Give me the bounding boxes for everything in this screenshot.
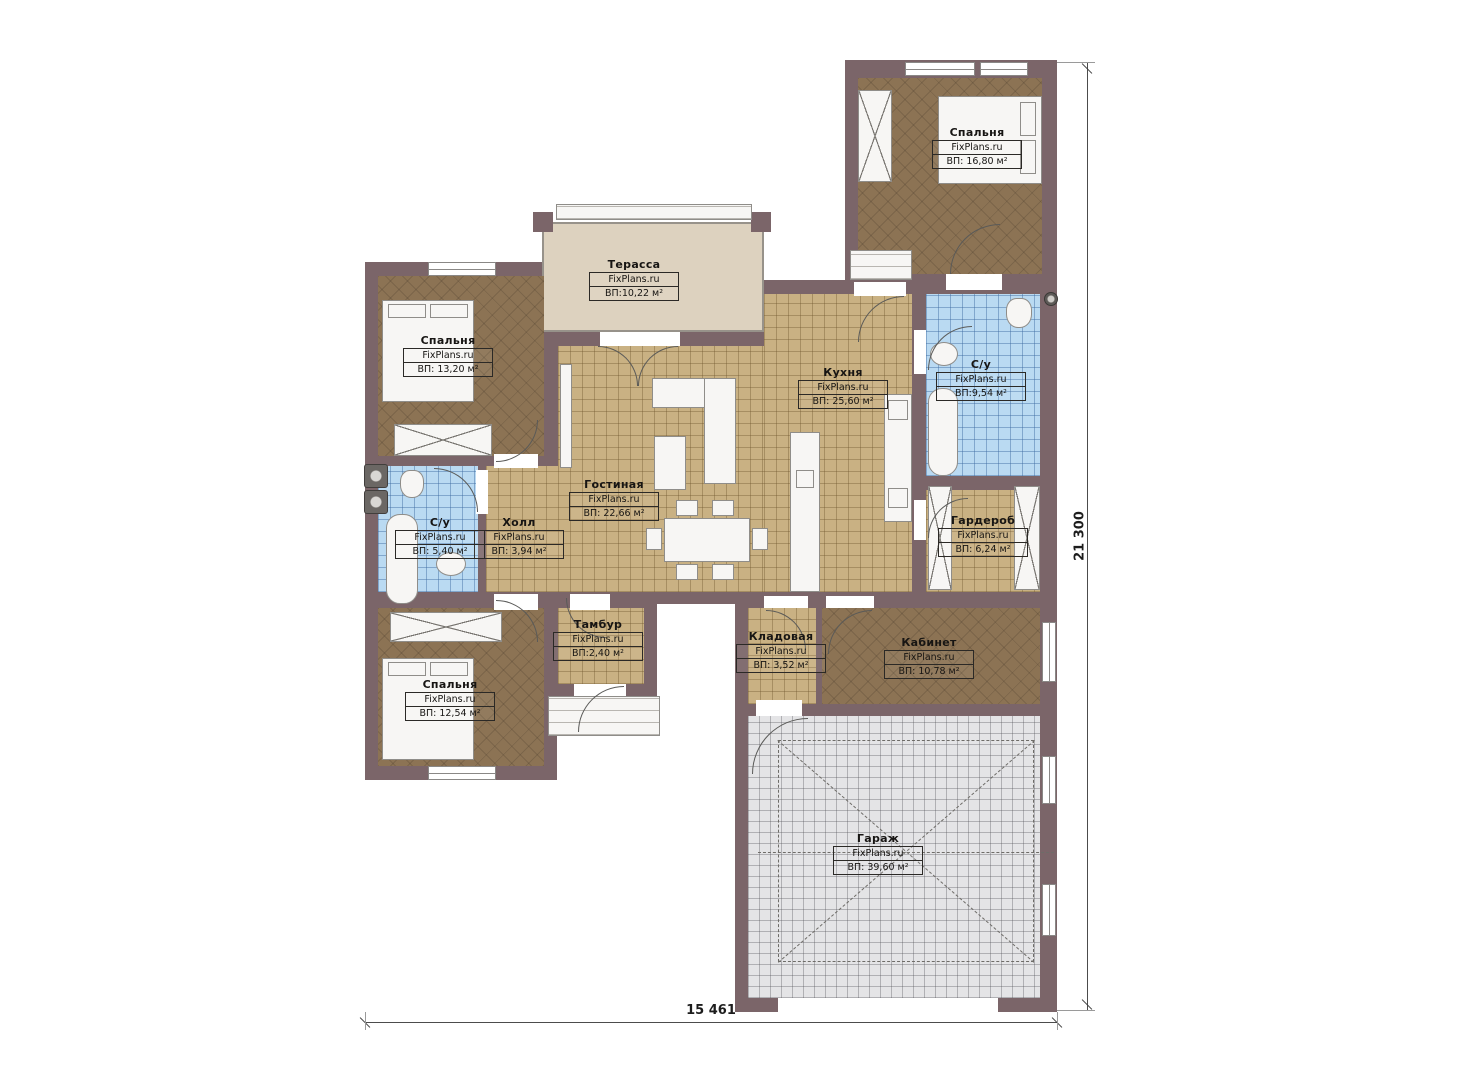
brand-watermark: FixPlans.ru bbox=[395, 530, 485, 545]
brand-watermark: FixPlans.ru bbox=[884, 650, 974, 665]
toilet bbox=[1006, 298, 1032, 328]
room-name: Спальня bbox=[405, 678, 495, 691]
brand-watermark: FixPlans.ru bbox=[553, 632, 643, 647]
room-area: ВП: 13,20 м² bbox=[403, 363, 493, 377]
room-area: ВП: 12,54 м² bbox=[405, 707, 495, 721]
extension-line bbox=[1057, 1012, 1058, 1030]
room-name: Терасса bbox=[589, 258, 679, 271]
porch-steps bbox=[850, 250, 912, 280]
room-area: ВП: 6,24 м² bbox=[938, 543, 1028, 557]
room-area: ВП: 10,78 м² bbox=[884, 665, 974, 679]
room-living-room-label: Гостиная FixPlans.ru ВП: 22,66 м² bbox=[569, 478, 659, 521]
brand-watermark: FixPlans.ru bbox=[736, 644, 826, 659]
brand-watermark: FixPlans.ru bbox=[936, 372, 1026, 387]
room-name: Гараж bbox=[833, 832, 923, 845]
room-name: С/у bbox=[395, 516, 485, 529]
room-name: Кладовая bbox=[736, 630, 826, 643]
room-wardrobe-label: Гардероб FixPlans.ru ВП: 6,24 м² bbox=[938, 514, 1028, 557]
room-name: Спальня bbox=[932, 126, 1022, 139]
kitchen-island bbox=[790, 432, 820, 592]
room-name: Гардероб bbox=[938, 514, 1028, 527]
brand-watermark: FixPlans.ru bbox=[474, 530, 564, 545]
wall-opening bbox=[600, 332, 680, 346]
terrace-pillar bbox=[533, 212, 553, 232]
wall-opening bbox=[764, 596, 808, 608]
room-area: ВП:2,40 м² bbox=[553, 647, 643, 661]
room-name: Холл bbox=[474, 516, 564, 529]
wall-opening bbox=[854, 282, 906, 296]
tv-console bbox=[560, 364, 572, 468]
dimension-height-label: 21 300 bbox=[1073, 511, 1088, 561]
extension-line bbox=[1057, 1010, 1095, 1011]
room-name: Спальня bbox=[403, 334, 493, 347]
window-mark bbox=[980, 62, 1028, 76]
room-garage-label: Гараж FixPlans.ru ВП: 39,60 м² bbox=[833, 832, 923, 875]
window-mark bbox=[1042, 622, 1056, 682]
chair bbox=[712, 500, 734, 516]
wall-opening bbox=[756, 700, 802, 716]
room-name: Кухня bbox=[798, 366, 888, 379]
room-area: ВП:10,22 м² bbox=[589, 287, 679, 301]
room-bedroom-left-bottom-label: Спальня FixPlans.ru ВП: 12,54 м² bbox=[405, 678, 495, 721]
window-mark bbox=[428, 766, 496, 780]
room-name: Кабинет bbox=[884, 636, 974, 649]
chair bbox=[646, 528, 662, 550]
room-hall-label: Холл FixPlans.ru ВП: 3,94 м² bbox=[474, 516, 564, 559]
toilet bbox=[400, 470, 424, 498]
bed-pillow bbox=[388, 304, 426, 318]
room-name: Гостиная bbox=[569, 478, 659, 491]
chair bbox=[712, 564, 734, 580]
room-area: ВП: 39,60 м² bbox=[833, 861, 923, 875]
room-area: ВП: 22,66 м² bbox=[569, 507, 659, 521]
chair bbox=[676, 500, 698, 516]
room-bedroom-left-top-label: Спальня FixPlans.ru ВП: 13,20 м² bbox=[403, 334, 493, 377]
room-area: ВП: 3,94 м² bbox=[474, 545, 564, 559]
appliance bbox=[888, 488, 908, 508]
wall-opening bbox=[914, 500, 926, 540]
wardrobe-cabinet bbox=[858, 90, 892, 182]
dimension-line-bottom bbox=[365, 1022, 1057, 1023]
room-area: ВП: 5,40 м² bbox=[395, 545, 485, 559]
chair bbox=[676, 564, 698, 580]
kitchen-sink bbox=[796, 470, 814, 488]
floor-plan: 15 461 21 300 Спальня FixPlans.ru ВП: 16… bbox=[0, 0, 1474, 1080]
wall-opening bbox=[946, 274, 1002, 290]
extension-line bbox=[365, 1012, 366, 1030]
room-name: Тамбур bbox=[553, 618, 643, 631]
room-area: ВП: 3,52 м² bbox=[736, 659, 826, 673]
brand-watermark: FixPlans.ru bbox=[405, 692, 495, 707]
vent-fan bbox=[1044, 292, 1058, 306]
room-area: ВП: 16,80 м² bbox=[932, 155, 1022, 169]
brand-watermark: FixPlans.ru bbox=[938, 528, 1028, 543]
bed-pillow bbox=[430, 662, 468, 676]
extension-line bbox=[1057, 62, 1095, 63]
bed-pillow bbox=[1020, 102, 1036, 136]
room-bathroom-left-label: С/у FixPlans.ru ВП: 5,40 м² bbox=[395, 516, 485, 559]
window-mark bbox=[905, 62, 975, 76]
bathtub bbox=[928, 388, 958, 476]
brand-watermark: FixPlans.ru bbox=[798, 380, 888, 395]
washer bbox=[364, 490, 388, 514]
window-mark bbox=[1042, 756, 1056, 804]
brand-watermark: FixPlans.ru bbox=[569, 492, 659, 507]
room-terrace-label: Терасса FixPlans.ru ВП:10,22 м² bbox=[589, 258, 679, 301]
room-name: С/у bbox=[936, 358, 1026, 371]
bed-pillow bbox=[430, 304, 468, 318]
terrace-step bbox=[556, 204, 752, 220]
washer bbox=[364, 464, 388, 488]
terrace-pillar bbox=[751, 212, 771, 232]
wardrobe-cabinet bbox=[394, 424, 492, 456]
window-mark bbox=[1042, 884, 1056, 936]
wall-opening bbox=[778, 998, 998, 1012]
brand-watermark: FixPlans.ru bbox=[589, 272, 679, 287]
room-bedroom-top-right-label: Спальня FixPlans.ru ВП: 16,80 м² bbox=[932, 126, 1022, 169]
brand-watermark: FixPlans.ru bbox=[932, 140, 1022, 155]
room-vestibule-label: Тамбур FixPlans.ru ВП:2,40 м² bbox=[553, 618, 643, 661]
brand-watermark: FixPlans.ru bbox=[403, 348, 493, 363]
dining-table bbox=[664, 518, 750, 562]
dimension-width-label: 15 461 bbox=[686, 1003, 736, 1018]
wardrobe-cabinet bbox=[390, 612, 502, 642]
sofa bbox=[704, 378, 736, 484]
room-area: ВП:9,54 м² bbox=[936, 387, 1026, 401]
window-mark bbox=[428, 262, 496, 276]
wall-opening bbox=[826, 596, 874, 608]
room-bathroom-top-label: С/у FixPlans.ru ВП:9,54 м² bbox=[936, 358, 1026, 401]
bed-pillow bbox=[388, 662, 426, 676]
room-kitchen-label: Кухня FixPlans.ru ВП: 25,60 м² bbox=[798, 366, 888, 409]
wall-opening bbox=[914, 330, 926, 374]
bed-pillow bbox=[1020, 140, 1036, 174]
room-area: ВП: 25,60 м² bbox=[798, 395, 888, 409]
stove bbox=[888, 400, 908, 420]
room-pantry-label: Кладовая FixPlans.ru ВП: 3,52 м² bbox=[736, 630, 826, 673]
chair bbox=[752, 528, 768, 550]
brand-watermark: FixPlans.ru bbox=[833, 846, 923, 861]
room-office-label: Кабинет FixPlans.ru ВП: 10,78 м² bbox=[884, 636, 974, 679]
